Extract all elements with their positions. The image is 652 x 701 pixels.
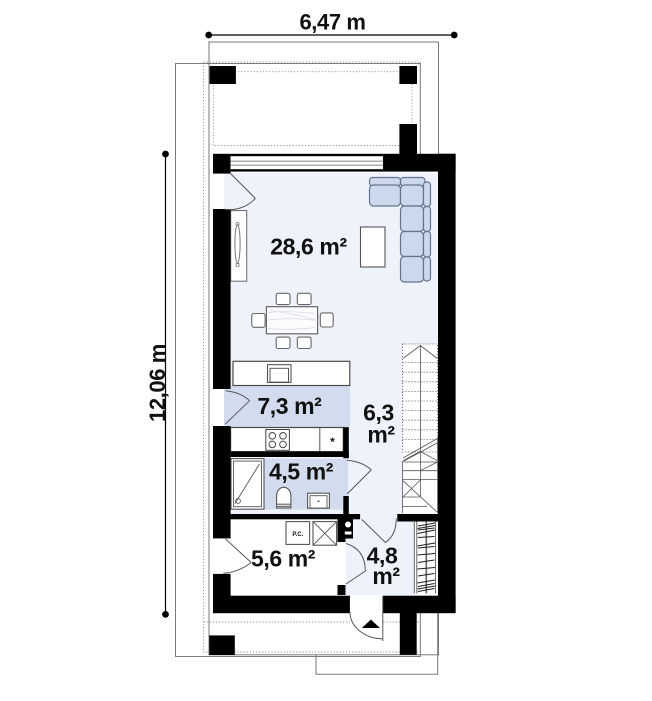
svg-text:m²: m²: [367, 422, 395, 448]
svg-text:6,47 m: 6,47 m: [299, 10, 365, 35]
svg-text:P.C.: P.C.: [292, 532, 303, 538]
svg-text:m²: m²: [372, 563, 400, 589]
svg-text:7,3 m²: 7,3 m²: [257, 393, 322, 419]
svg-text:5,6 m²: 5,6 m²: [251, 546, 316, 572]
svg-text:12,06 m: 12,06 m: [145, 344, 170, 422]
svg-text:*: *: [330, 435, 335, 449]
svg-text:28,6 m²: 28,6 m²: [270, 234, 347, 260]
svg-text:4,5 m²: 4,5 m²: [269, 459, 334, 485]
